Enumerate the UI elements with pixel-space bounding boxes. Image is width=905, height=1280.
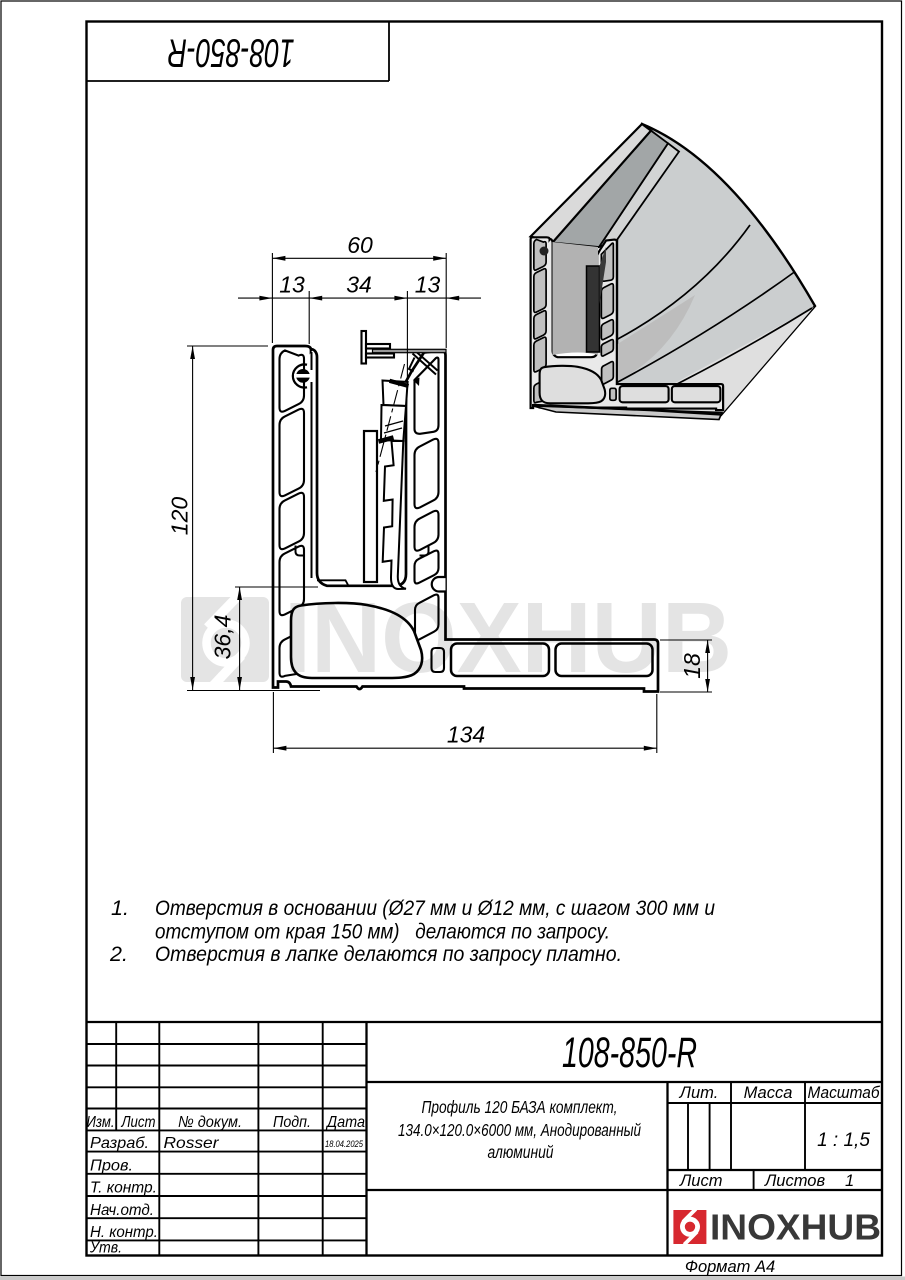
svg-text:Лист: Лист xyxy=(679,1172,722,1190)
svg-text:2.: 2. xyxy=(109,942,128,966)
svg-text:1.: 1. xyxy=(111,896,129,920)
svg-text:INOXHUB: INOXHUB xyxy=(284,582,732,694)
svg-text:Пров.: Пров. xyxy=(90,1158,133,1175)
svg-text:13: 13 xyxy=(415,272,441,298)
svg-text:Rosser: Rosser xyxy=(164,1135,220,1152)
svg-text:13: 13 xyxy=(279,272,305,298)
svg-text:60: 60 xyxy=(347,232,373,258)
svg-text:120: 120 xyxy=(167,497,193,536)
svg-text:Лист: Лист xyxy=(121,1114,156,1131)
svg-text:Т. контр.: Т. контр. xyxy=(90,1180,157,1197)
svg-text:Изм.: Изм. xyxy=(87,1114,115,1131)
svg-text:Отверстия в лапке делаются по: Отверстия в лапке делаются по запросу пл… xyxy=(155,942,622,966)
svg-text:№ докум.: № докум. xyxy=(178,1114,242,1131)
svg-text:Масштаб: Масштаб xyxy=(808,1084,881,1102)
svg-text:18.04.2025: 18.04.2025 xyxy=(325,1139,364,1150)
svg-text:Листов: Листов xyxy=(764,1172,825,1190)
svg-text:134.0×120.0×6000 мм, Анодирова: 134.0×120.0×6000 мм, Анодированный xyxy=(398,1120,641,1140)
svg-text:Нач.отд.: Нач.отд. xyxy=(90,1202,154,1219)
svg-text:108-850-R: 108-850-R xyxy=(168,31,295,75)
svg-text:1: 1 xyxy=(845,1172,854,1190)
svg-text:Подп.: Подп. xyxy=(273,1114,311,1131)
svg-text:Масса: Масса xyxy=(744,1084,793,1102)
svg-text:алюминий: алюминий xyxy=(488,1142,554,1162)
svg-text:34: 34 xyxy=(346,272,372,298)
svg-text:Утв.: Утв. xyxy=(89,1240,122,1257)
svg-text:Профиль 120 БАЗА комплект,: Профиль 120 БАЗА комплект, xyxy=(422,1097,618,1117)
svg-text:1 : 1,5: 1 : 1,5 xyxy=(817,1130,870,1151)
svg-text:Разраб.: Разраб. xyxy=(90,1135,149,1152)
svg-text:Формат А4: Формат А4 xyxy=(685,1258,775,1276)
svg-text:Отверстия в основании (Ø27 мм: Отверстия в основании (Ø27 мм и Ø12 мм, … xyxy=(155,896,715,920)
svg-text:отступом от края 150 мм) дел: отступом от края 150 мм) делаются по зап… xyxy=(155,920,610,944)
svg-text:108-850-R: 108-850-R xyxy=(562,1029,697,1077)
svg-text:134: 134 xyxy=(447,722,485,748)
svg-text:Лит.: Лит. xyxy=(679,1084,719,1102)
svg-text:INOXHUB: INOXHUB xyxy=(710,1207,881,1248)
svg-text:Дата: Дата xyxy=(325,1114,365,1131)
svg-text:Н. контр.: Н. контр. xyxy=(90,1224,158,1241)
